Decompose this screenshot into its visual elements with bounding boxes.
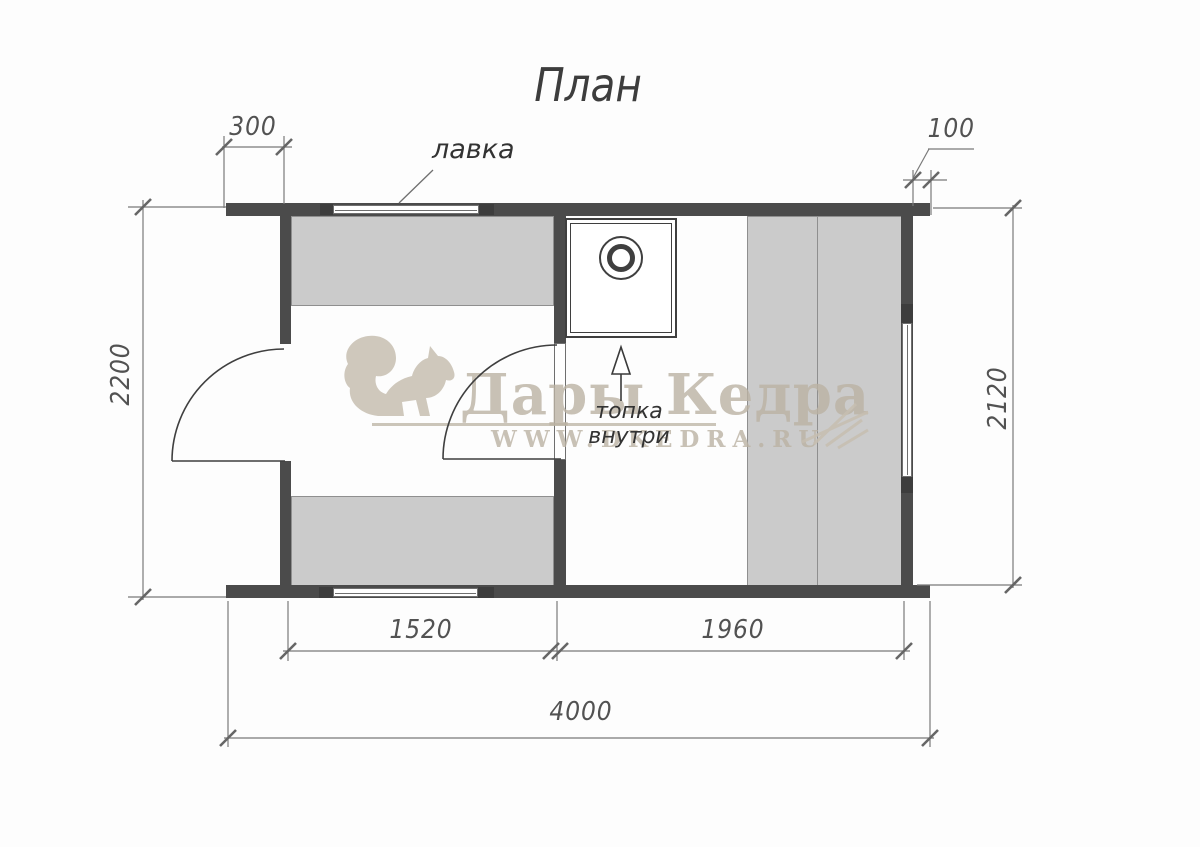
interior-door	[443, 345, 561, 459]
dim-1960: 1960	[688, 615, 778, 645]
page-title: План	[482, 58, 693, 112]
dim-2200: 2200	[106, 325, 136, 424]
bench-label-leader	[399, 170, 433, 203]
dim-300: 300	[224, 112, 282, 142]
dim-2120: 2120	[983, 349, 1013, 448]
floor-plan-drawing: План Дары Кедра WWW.DKEDRA.RU	[0, 0, 1200, 847]
dim-100: 100	[928, 114, 975, 144]
stove-label: топка внутри	[553, 399, 705, 449]
exterior-door	[172, 349, 285, 461]
dim-1520: 1520	[376, 615, 466, 645]
bench-label: лавка	[432, 134, 515, 165]
stove-arrow-icon	[612, 347, 630, 401]
dim-4000: 4000	[536, 697, 626, 727]
